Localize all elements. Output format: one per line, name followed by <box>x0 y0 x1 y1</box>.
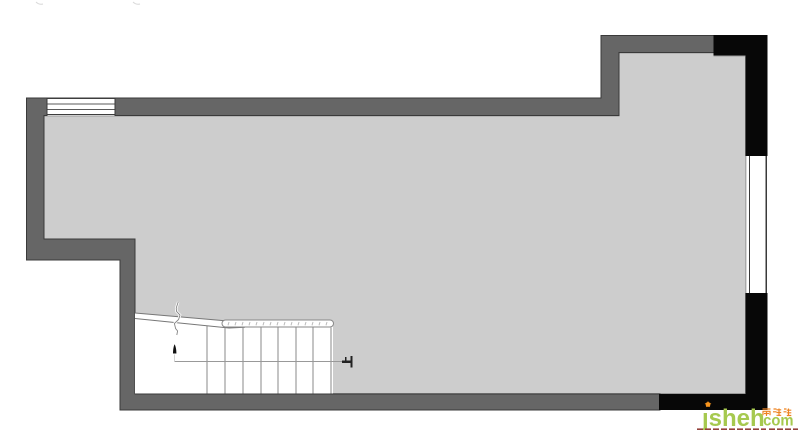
svg-text:ȷsheh: ȷsheh <box>701 405 765 430</box>
